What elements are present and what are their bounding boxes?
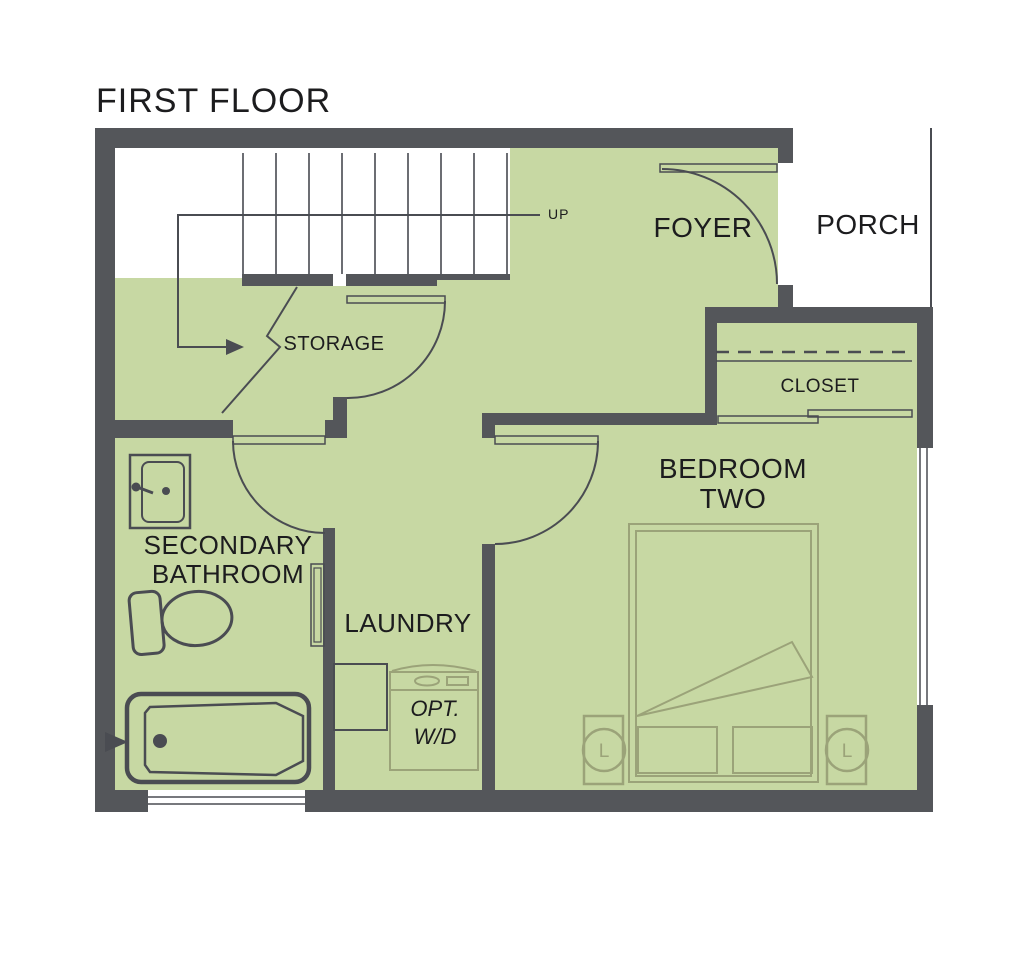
closet-label: CLOSET <box>780 376 859 397</box>
foyer-label: FOYER <box>654 212 753 243</box>
staircase <box>115 148 510 278</box>
plan-title: FIRST FLOOR <box>96 82 331 120</box>
bathroom-label-line1: SECONDARY <box>144 530 313 560</box>
bathroom-label-line2: BATHROOM <box>152 559 304 589</box>
bedroom-window <box>917 448 933 705</box>
porch-label: PORCH <box>816 209 920 240</box>
bedroom-label-line2: TWO <box>700 483 767 514</box>
storage-door-frame <box>333 274 346 286</box>
optwd-label-line1: OPT. <box>410 696 459 721</box>
bedroom-label-line1: BEDROOM <box>659 453 807 484</box>
storage-label: STORAGE <box>284 333 385 355</box>
tub-faucet-icon <box>153 734 167 748</box>
optwd-label-line2: W/D <box>414 724 457 749</box>
lamp-label: L <box>842 741 853 762</box>
floor-plan: L L FIRST FLOOR UP FOYER PORCH STORAGE C… <box>0 0 1024 973</box>
floor-plan-drawing: L L FIRST FLOOR UP FOYER PORCH STORAGE C… <box>0 0 1024 973</box>
bathroom-window <box>148 790 305 812</box>
laundry-label: LAUNDRY <box>344 608 471 638</box>
lamp-label: L <box>599 741 610 762</box>
up-label: UP <box>548 206 569 222</box>
